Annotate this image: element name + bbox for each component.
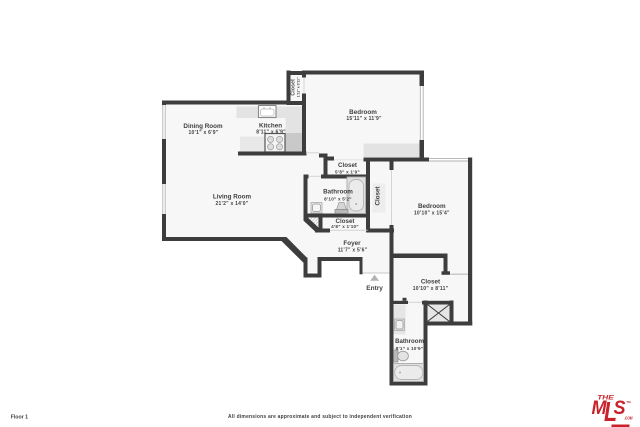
svg-text:Dining Room: Dining Room xyxy=(183,123,223,130)
svg-text:Closet: Closet xyxy=(375,187,382,206)
svg-text:All dimensions are approximate: All dimensions are approximate and subje… xyxy=(228,414,412,420)
svg-text:1’11” x 3’11”: 1’11” x 3’11” xyxy=(297,77,301,97)
svg-text:Closet: Closet xyxy=(421,278,441,285)
svg-text:10’10” x 15’4”: 10’10” x 15’4” xyxy=(414,211,450,217)
svg-text:4’8” x 1’10”: 4’8” x 1’10” xyxy=(331,224,359,229)
svg-text:11’7” x 5’6”: 11’7” x 5’6” xyxy=(338,247,368,253)
svg-text:Bathroom: Bathroom xyxy=(323,188,353,195)
svg-text:8’1” x 10’9”: 8’1” x 10’9” xyxy=(396,346,424,351)
svg-text:Bathroom: Bathroom xyxy=(395,338,424,345)
svg-text:.COM: .COM xyxy=(624,416,633,421)
svg-text:8’11” x 6’9”: 8’11” x 6’9” xyxy=(256,130,286,136)
svg-text:Floor 1: Floor 1 xyxy=(11,415,29,421)
svg-text:10’1” x 6’9”: 10’1” x 6’9” xyxy=(189,130,219,136)
svg-text:Bedroom: Bedroom xyxy=(349,109,377,116)
svg-text:Bedroom: Bedroom xyxy=(418,203,446,210)
svg-text:Foyer: Foyer xyxy=(343,240,361,247)
svg-text:10’10” x 8’11”: 10’10” x 8’11” xyxy=(413,286,449,292)
svg-text:Closet: Closet xyxy=(338,162,357,169)
svg-text:8’10” x 5’2”: 8’10” x 5’2” xyxy=(324,197,352,202)
svg-text:Kitchen: Kitchen xyxy=(259,122,282,129)
svg-text:5’8” x 1’9”: 5’8” x 1’9” xyxy=(335,169,360,174)
svg-text:15’11” x 11’9”: 15’11” x 11’9” xyxy=(346,116,382,122)
svg-text:21’2” x 14’0”: 21’2” x 14’0” xyxy=(216,201,249,207)
svg-text:Entry: Entry xyxy=(366,285,383,292)
svg-text:TM: TM xyxy=(626,400,631,404)
svg-text:Living Room: Living Room xyxy=(213,193,252,200)
